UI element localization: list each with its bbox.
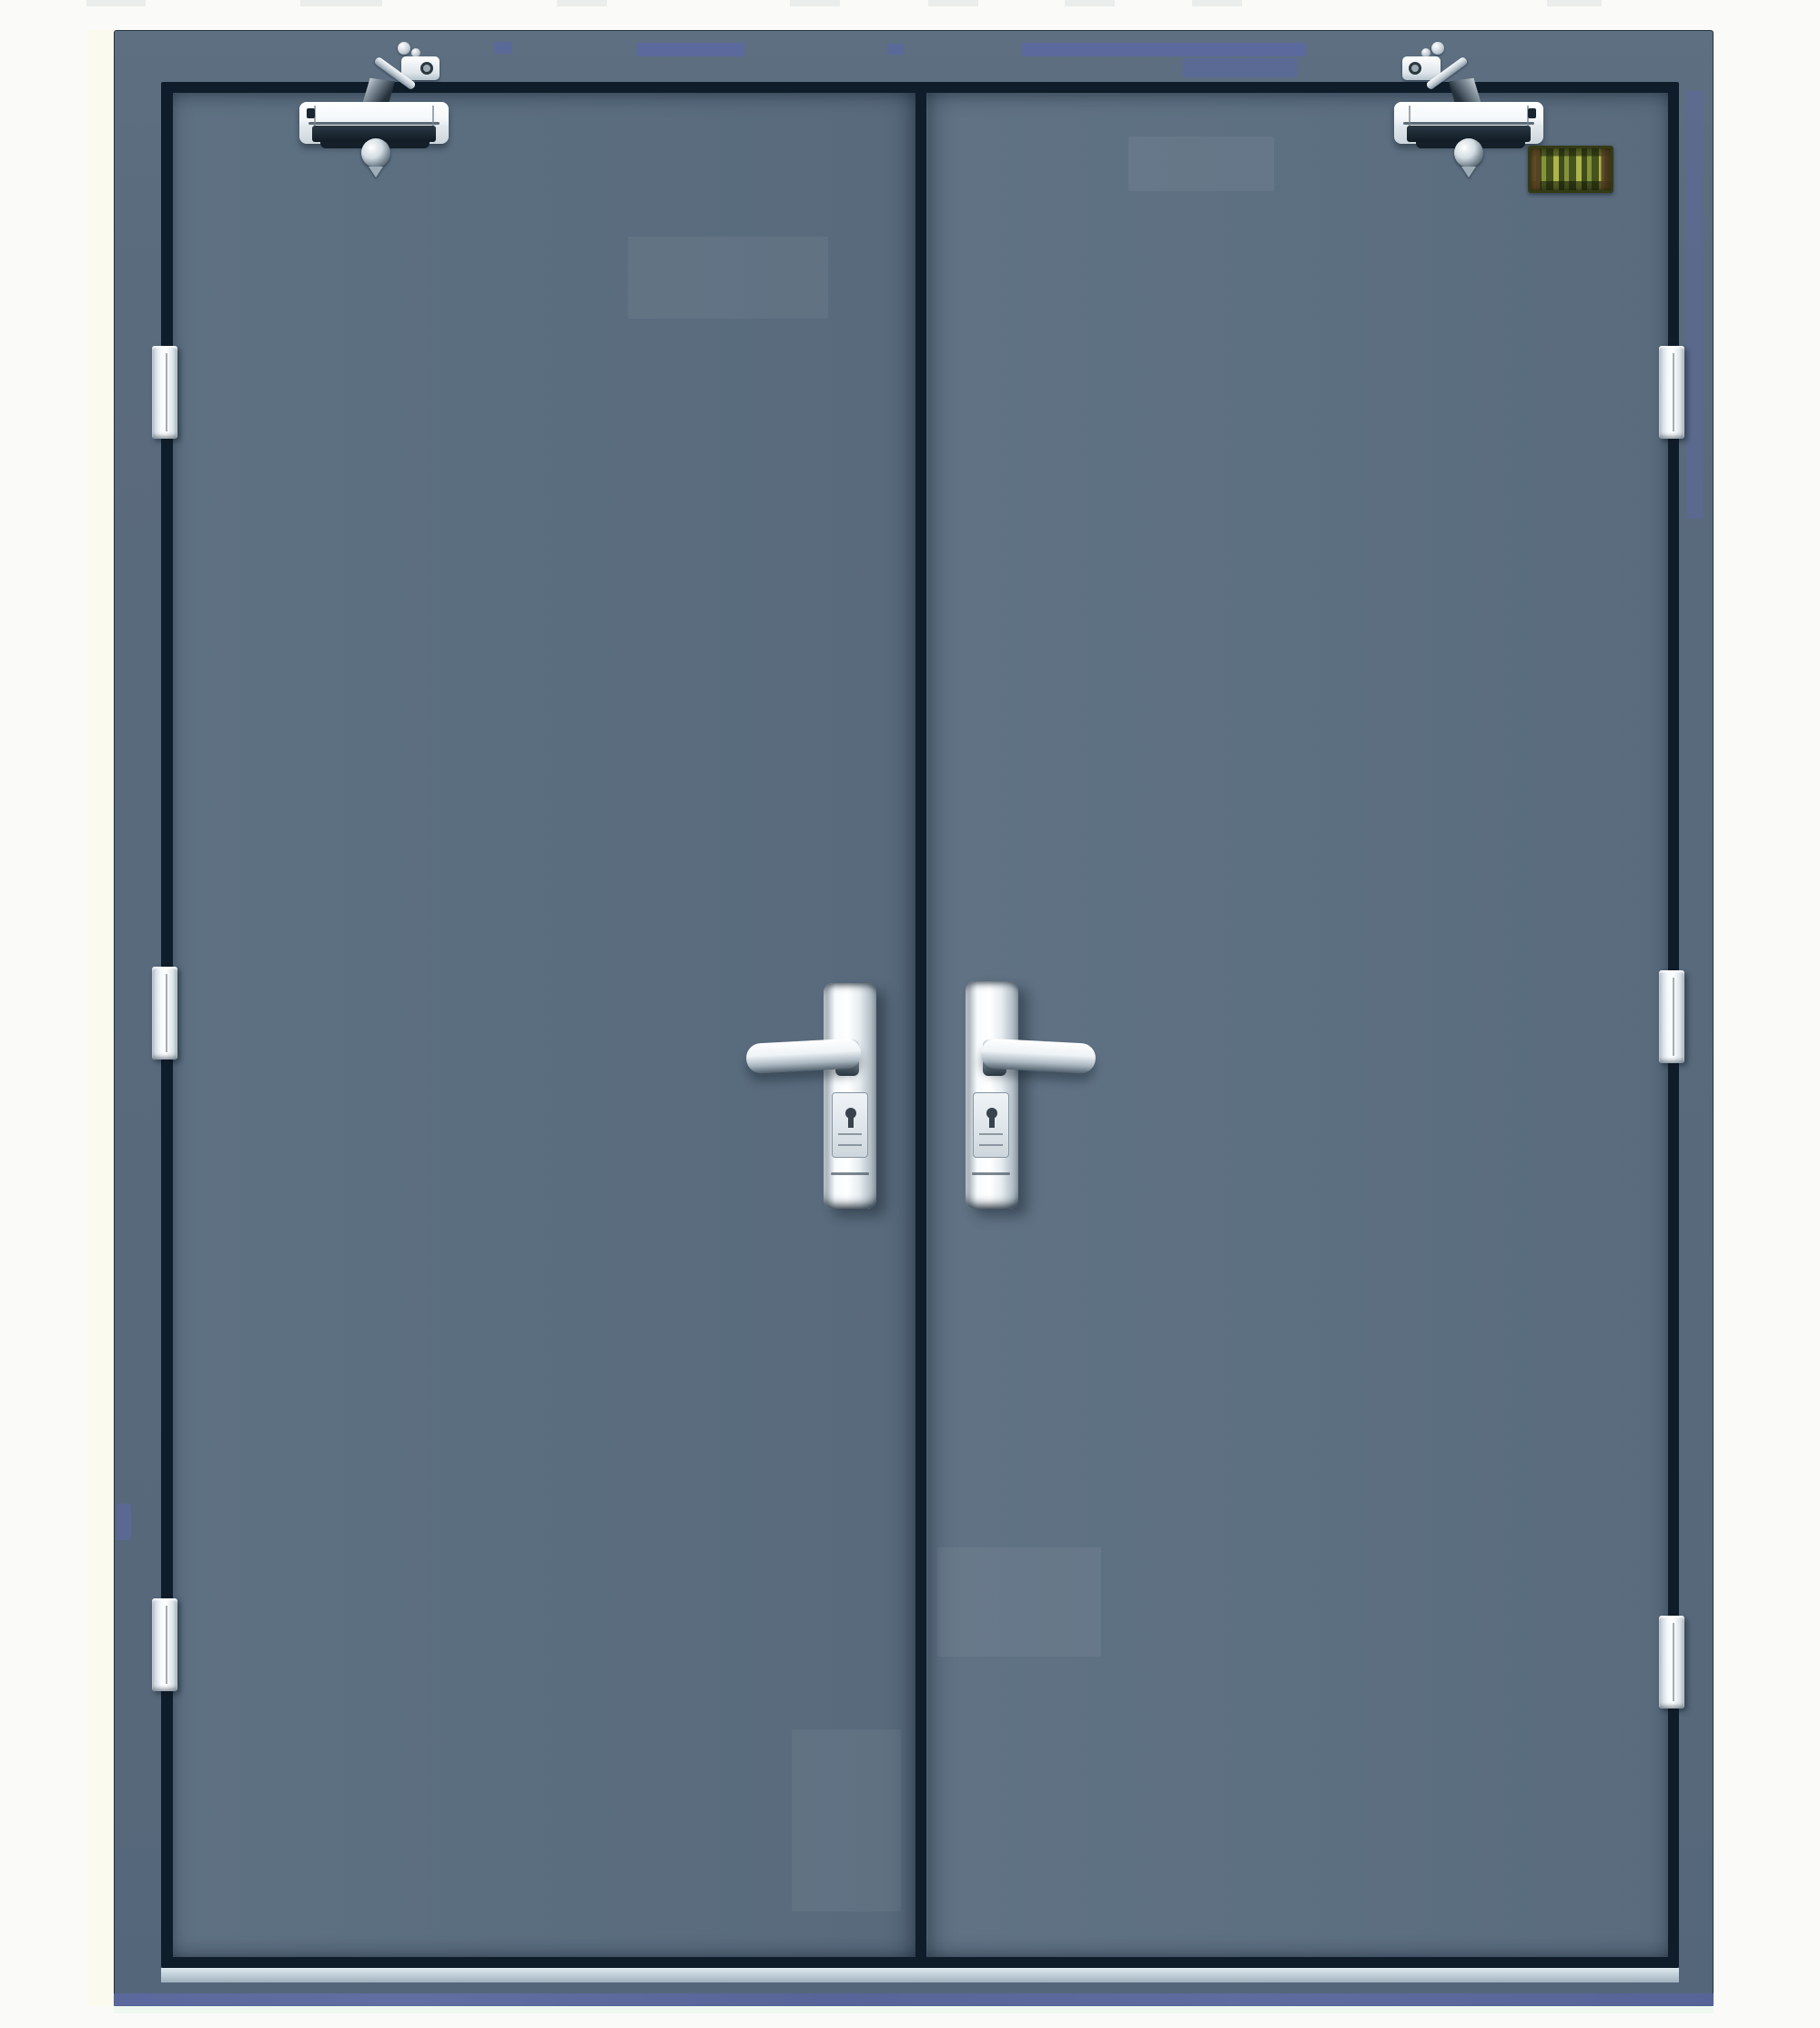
frame-reflection-patch <box>1183 58 1298 77</box>
frame-reflection-patch <box>494 42 512 54</box>
page-edge-artifact <box>86 0 146 6</box>
lock-cylinder-recess-right <box>973 1092 1009 1158</box>
closer-valve-screw <box>1528 108 1536 118</box>
recess-line <box>838 1133 862 1135</box>
plate-groove-right <box>972 1172 1010 1175</box>
frame-left-edge-accent <box>116 1504 131 1540</box>
closer-pinion-tip-right <box>1461 167 1476 177</box>
page-edge-artifact <box>1547 0 1602 6</box>
door-surface-highlight <box>628 237 828 319</box>
keyhole-icon <box>986 1108 997 1119</box>
frame-left-edge-accent <box>116 38 133 603</box>
keyhole-icon <box>845 1108 856 1119</box>
plate-groove-left <box>831 1172 869 1175</box>
hinge-left-top <box>152 346 177 439</box>
page-edge-artifact <box>1192 0 1242 6</box>
closer-body-seam <box>308 122 440 125</box>
threshold-sill <box>161 1968 1679 1982</box>
recess-line <box>979 1144 1003 1146</box>
hinge-left-middle <box>152 967 177 1060</box>
page-edge-artifact <box>928 0 978 6</box>
frame-reflection-patch <box>1022 43 1306 56</box>
recess-line <box>979 1133 1003 1135</box>
lever-handle-left <box>745 1038 862 1074</box>
bracket-hole-left <box>420 62 433 75</box>
door-surface-highlight <box>1128 137 1274 191</box>
lever-handle-right <box>980 1038 1097 1074</box>
certification-label <box>1528 146 1613 193</box>
bracket-hole-right <box>1409 62 1421 75</box>
hinge-right-middle <box>1659 970 1684 1063</box>
left-margin-tint <box>87 30 114 2006</box>
door-surface-highlight <box>937 1547 1101 1657</box>
recess-line <box>838 1144 862 1146</box>
left-door-leaf <box>173 93 915 1957</box>
page-edge-artifact <box>300 0 382 6</box>
closer-pinion-right <box>1454 138 1483 167</box>
floor-reflection-line <box>114 2006 1714 2013</box>
closer-valve-screw <box>307 108 315 118</box>
hinge-right-bottom <box>1659 1616 1684 1709</box>
frame-reflection-patch <box>637 43 744 56</box>
page-edge-artifact <box>557 0 607 6</box>
closer-pinion-left <box>361 138 390 167</box>
closer-arm-pivot-left <box>398 42 410 55</box>
fire-door-product-photo <box>0 0 1820 2028</box>
hinge-left-bottom <box>152 1598 177 1691</box>
right-door-leaf <box>926 93 1668 1957</box>
closer-pinion-tip-left <box>369 167 383 177</box>
page-edge-artifact <box>790 0 840 6</box>
closer-arm-pivot-right <box>1431 42 1444 55</box>
lock-cylinder-recess-left <box>832 1092 868 1158</box>
hinge-right-top <box>1659 346 1684 439</box>
frame-bottom-accent <box>114 1993 1714 2006</box>
frame-right-edge-accent <box>1686 91 1703 519</box>
closer-body-seam <box>1403 122 1534 125</box>
frame-reflection-patch <box>887 44 904 55</box>
page-edge-artifact <box>1065 0 1115 6</box>
door-surface-highlight <box>792 1729 901 1911</box>
